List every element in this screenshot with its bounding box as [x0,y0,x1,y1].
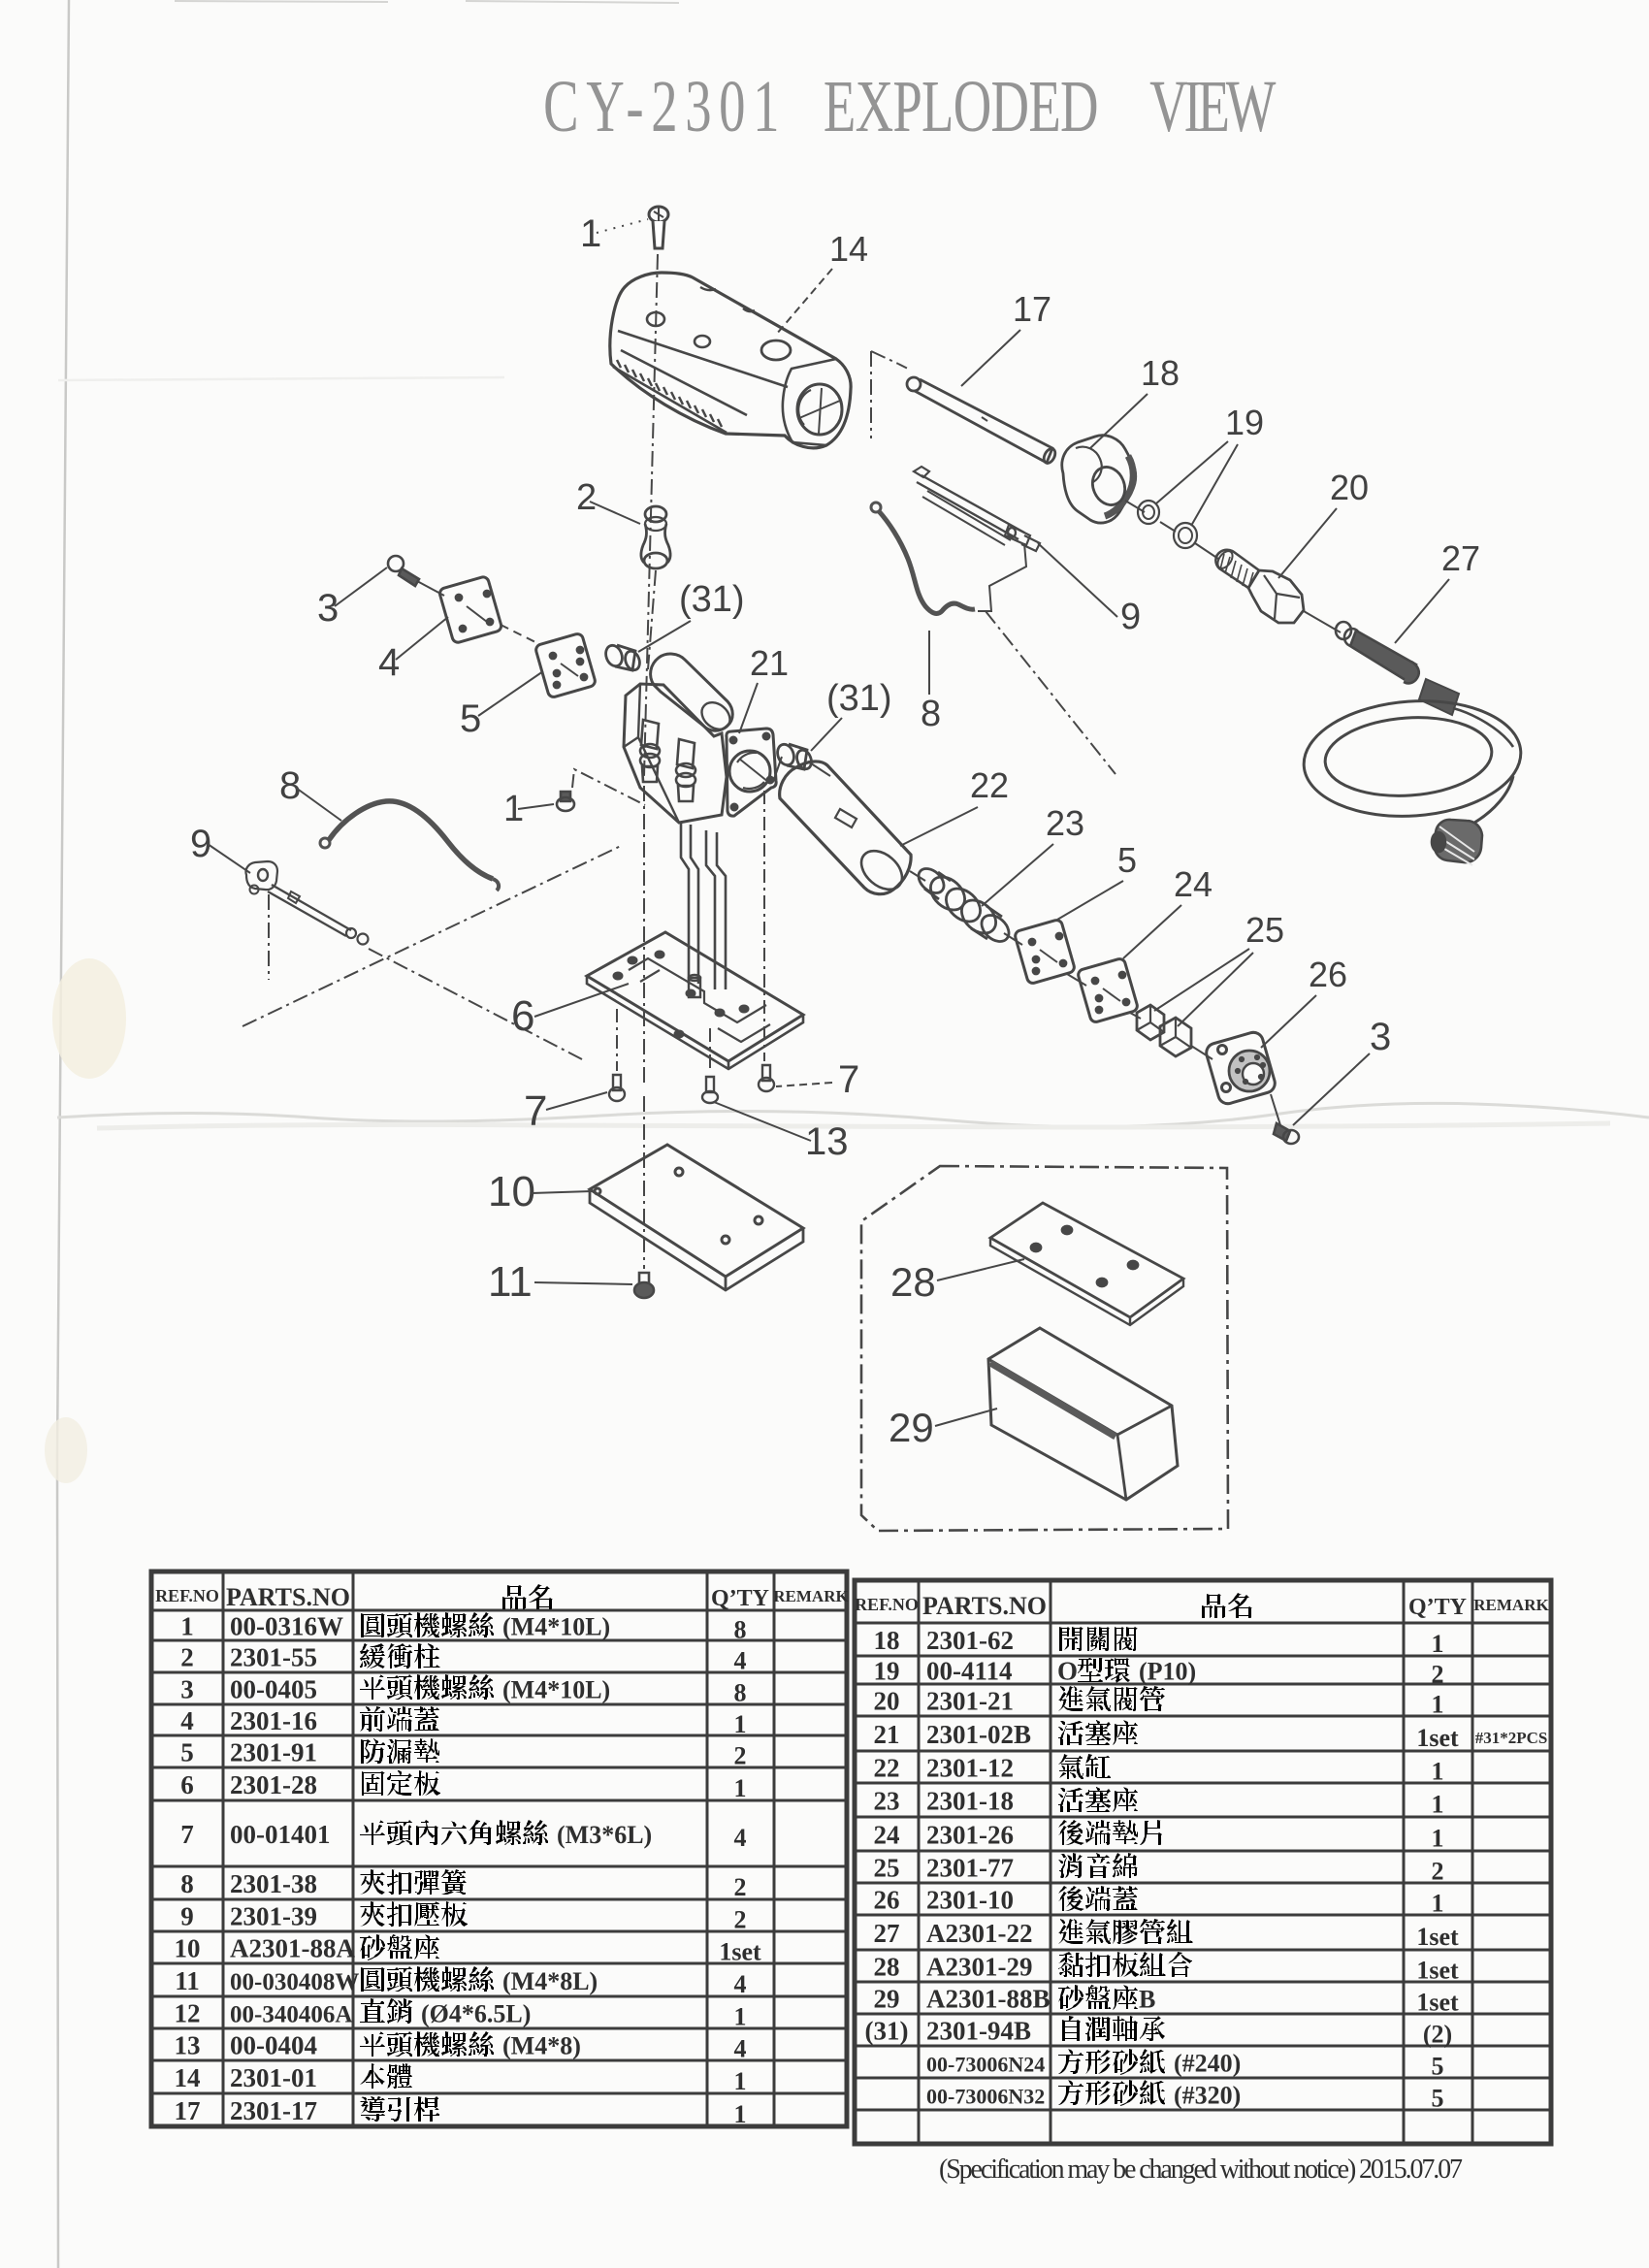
svg-text:29: 29 [889,1405,934,1450]
svg-text:18: 18 [874,1626,900,1655]
svg-text:26: 26 [1309,955,1347,994]
svg-text:23: 23 [874,1787,900,1816]
svg-text:5: 5 [1117,840,1137,880]
svg-text:2: 2 [734,1873,747,1901]
svg-text:(31): (31) [679,579,745,620]
svg-text:00-73006N32: 00-73006N32 [926,2085,1045,2109]
svg-text:1: 1 [180,1612,194,1641]
svg-text:2: 2 [734,1906,747,1934]
svg-text:9: 9 [1120,597,1141,637]
svg-text:20: 20 [874,1687,900,1716]
svg-text:REF.NO: REF.NO [855,1595,919,1614]
svg-text:1: 1 [734,2003,747,2031]
svg-text:(Specification may be changed: (Specification may be changed without no… [939,2155,1463,2185]
svg-text:REMARK: REMARK [773,1587,849,1605]
svg-text:1set: 1set [1416,1957,1459,1985]
svg-text:00-01401: 00-01401 [230,1820,331,1849]
svg-text:4: 4 [734,1647,747,1675]
svg-text:(#240): (#240) [1174,2050,1241,2078]
svg-text:2: 2 [180,1643,194,1672]
svg-text:2301-17: 2301-17 [230,2096,317,2125]
svg-text:00-340406A: 00-340406A [230,2002,352,2028]
svg-text:1: 1 [1432,1630,1444,1658]
svg-text:00-030408W: 00-030408W [230,1969,359,1995]
svg-text:3: 3 [1370,1016,1391,1058]
svg-text:4: 4 [734,2035,747,2063]
svg-text:7: 7 [180,1820,194,1849]
svg-text:4: 4 [734,1970,747,1998]
svg-text:2301-77: 2301-77 [926,1854,1014,1883]
svg-text:(M4*8L): (M4*8L) [502,1967,598,1995]
svg-text:2301-01: 2301-01 [230,2063,317,2092]
svg-text:1set: 1set [1416,1989,1459,2017]
svg-text:24: 24 [874,1821,900,1850]
svg-text:13: 13 [175,2031,201,2060]
svg-text:VIEW: VIEW [1149,66,1277,147]
svg-text:29: 29 [874,1985,900,2014]
svg-text:7: 7 [524,1087,547,1135]
svg-text:19: 19 [874,1657,900,1686]
svg-text:00-0316W: 00-0316W [230,1612,343,1641]
svg-text:5: 5 [460,697,481,740]
svg-text:(Ø4*6.5L): (Ø4*6.5L) [421,2000,531,2028]
svg-text:2301-62: 2301-62 [926,1626,1014,1655]
svg-text:23: 23 [1046,803,1084,843]
svg-text:24: 24 [1174,864,1212,904]
svg-text:PARTS.NO: PARTS.NO [922,1592,1047,1620]
svg-text:(#320): (#320) [1174,2082,1241,2110]
svg-text:17: 17 [175,2096,201,2125]
svg-text:14: 14 [175,2063,201,2092]
svg-text:5: 5 [1432,2085,1444,2113]
svg-text:8: 8 [734,1679,747,1707]
svg-text:2301-18: 2301-18 [926,1787,1014,1816]
svg-text:11: 11 [175,1966,200,1995]
svg-text:(M4*10L): (M4*10L) [502,1676,610,1704]
svg-text:(2): (2) [1423,2021,1452,2049]
svg-text:10: 10 [175,1934,201,1963]
svg-text:O: O [1057,1657,1078,1686]
svg-text:#31*2PCS: #31*2PCS [1475,1729,1548,1747]
svg-text:2301-91: 2301-91 [230,1738,317,1767]
svg-text:2301-10: 2301-10 [926,1886,1014,1915]
svg-text:18: 18 [1141,353,1180,393]
svg-text:6: 6 [511,992,534,1040]
svg-text:1: 1 [734,1710,747,1738]
svg-text:2301-39: 2301-39 [230,1902,317,1931]
svg-text:00-73006N24: 00-73006N24 [926,2053,1045,2077]
svg-text:2: 2 [576,477,597,518]
svg-text:CY-2301: CY-2301 [543,66,779,147]
svg-text:6: 6 [180,1770,194,1799]
svg-text:2: 2 [1432,1661,1444,1689]
svg-text:5: 5 [1432,2053,1444,2081]
svg-text:1set: 1set [1416,1923,1459,1951]
svg-text:20: 20 [1330,468,1369,507]
svg-text:2301-02B: 2301-02B [926,1720,1031,1749]
svg-text:2301-26: 2301-26 [926,1821,1014,1850]
svg-text:1: 1 [1432,1825,1444,1853]
svg-text:8: 8 [180,1869,194,1898]
svg-text:A2301-22: A2301-22 [926,1919,1033,1948]
svg-text:00-4114: 00-4114 [926,1657,1013,1686]
svg-text:1: 1 [1432,1791,1444,1819]
svg-text:8: 8 [279,764,301,807]
svg-text:27: 27 [874,1919,900,1948]
svg-text:1: 1 [1432,1758,1444,1786]
svg-text:3: 3 [317,587,339,630]
svg-text:(M4*8): (M4*8) [502,2032,581,2060]
svg-text:4: 4 [734,1824,747,1852]
svg-text:1: 1 [1432,1691,1444,1719]
svg-text:28: 28 [874,1953,900,1982]
svg-text:1: 1 [1432,1890,1444,1918]
svg-text:2301-55: 2301-55 [230,1643,317,1672]
svg-text:1: 1 [734,1774,747,1802]
svg-text:A2301-88A: A2301-88A [230,1934,355,1963]
svg-text:26: 26 [874,1886,900,1915]
svg-text:(M3*6L): (M3*6L) [557,1821,652,1849]
svg-text:19: 19 [1225,403,1264,442]
svg-text:11: 11 [488,1258,533,1306]
svg-text:4: 4 [378,641,400,684]
svg-text:REF.NO: REF.NO [155,1586,219,1605]
svg-text:8: 8 [921,694,941,734]
svg-text:2301-12: 2301-12 [926,1754,1014,1783]
svg-text:2301-28: 2301-28 [230,1770,317,1799]
svg-text:Q’TY: Q’TY [1408,1595,1467,1620]
svg-text:(31): (31) [865,2017,909,2046]
svg-text:22: 22 [874,1754,900,1783]
svg-text:1set: 1set [1416,1724,1459,1752]
svg-text:(M4*10L): (M4*10L) [502,1613,610,1641]
svg-text:4: 4 [180,1706,194,1735]
svg-text:2: 2 [734,1742,747,1770]
svg-text:EXPLODED: EXPLODED [824,66,1099,147]
svg-text:2301-16: 2301-16 [230,1706,317,1735]
svg-text:(31): (31) [826,678,892,719]
svg-text:28: 28 [890,1259,936,1305]
svg-text:PARTS.NO: PARTS.NO [226,1583,350,1611]
svg-text:7: 7 [838,1058,859,1101]
svg-text:REMARK: REMARK [1473,1596,1549,1614]
svg-text:B: B [1139,1986,1155,2014]
svg-text:9: 9 [180,1902,194,1931]
svg-text:12: 12 [175,1999,201,2028]
svg-text:2301-21: 2301-21 [926,1687,1014,1716]
svg-text:10: 10 [488,1168,535,1215]
svg-text:25: 25 [1245,910,1284,950]
svg-text:27: 27 [1441,538,1480,578]
svg-text:Q’TY: Q’TY [711,1586,769,1611]
svg-text:1set: 1set [719,1938,761,1966]
svg-text:(P10): (P10) [1139,1658,1196,1686]
svg-text:22: 22 [970,765,1009,805]
svg-text:25: 25 [874,1854,900,1883]
svg-text:5: 5 [180,1738,194,1767]
svg-text:A2301-29: A2301-29 [926,1953,1033,1982]
svg-text:21: 21 [874,1720,900,1749]
svg-text:1: 1 [580,212,601,255]
svg-text:17: 17 [1013,289,1051,329]
svg-text:00-0405: 00-0405 [230,1675,317,1704]
svg-text:8: 8 [734,1616,747,1644]
svg-text:14: 14 [829,229,868,269]
svg-text:21: 21 [750,643,789,683]
svg-text:2301-94B: 2301-94B [926,2017,1031,2046]
svg-text:1: 1 [734,2067,747,2095]
svg-text:2: 2 [1432,1858,1444,1886]
svg-text:13: 13 [805,1120,849,1163]
svg-text:3: 3 [180,1675,194,1704]
svg-text:2301-38: 2301-38 [230,1869,317,1898]
svg-text:A2301-88B: A2301-88B [926,1985,1051,2014]
svg-text:00-0404: 00-0404 [230,2031,317,2060]
svg-text:1: 1 [734,2100,747,2128]
